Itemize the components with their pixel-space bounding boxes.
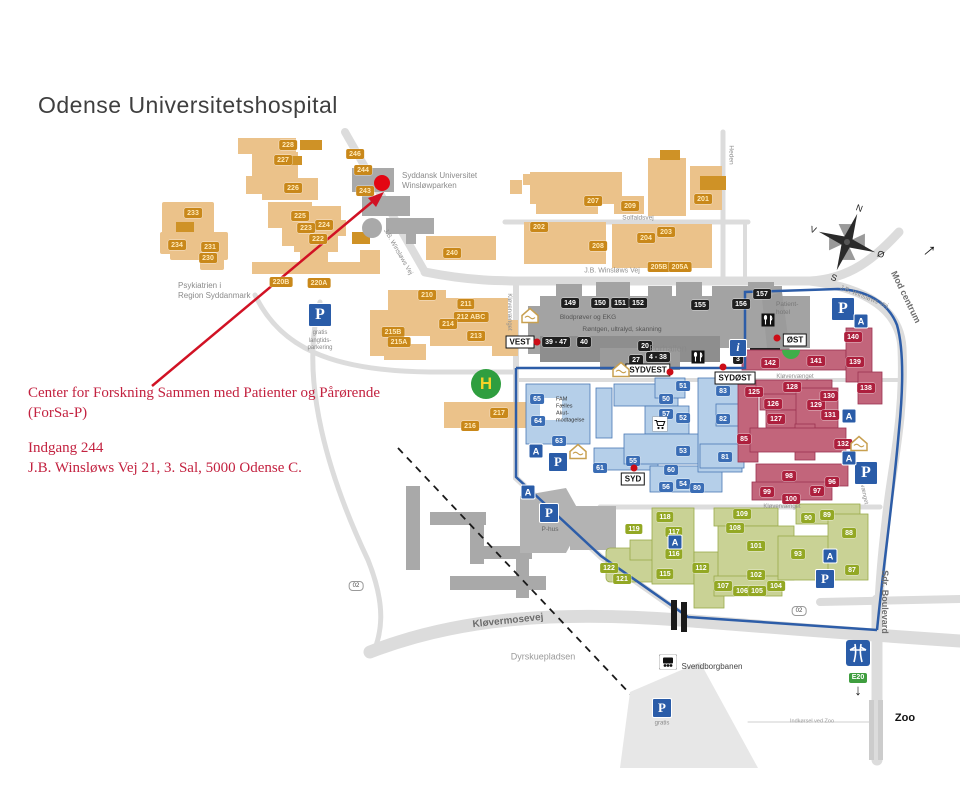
info-icon: i [729, 339, 747, 357]
building-205B: 205B [648, 262, 671, 272]
building-85: 85 [737, 434, 751, 444]
chapel-icon [611, 361, 631, 378]
building-240: 240 [443, 248, 461, 258]
area-label-12: P-hus [542, 526, 559, 534]
building-201: 201 [694, 194, 712, 204]
building-39-47: 39 - 47 [542, 337, 570, 347]
helipad-icon: H [471, 369, 501, 399]
building-202: 202 [530, 222, 548, 232]
building-220A: 220A [308, 278, 331, 288]
building-87: 87 [845, 565, 859, 575]
parking-icon: P [308, 303, 332, 327]
chapel-icon [568, 443, 588, 460]
building-121: 121 [613, 574, 631, 584]
entrance-dot-sydvest [667, 369, 674, 376]
parking-icon: P [854, 461, 878, 485]
building-152: 152 [629, 298, 647, 308]
street-label-3: Solfaldsvej [622, 215, 653, 222]
building-50: 50 [659, 394, 673, 404]
building-93: 93 [791, 549, 805, 559]
building-40: 40 [577, 337, 591, 347]
building-213: 213 [467, 331, 485, 341]
building-227: 227 [274, 155, 292, 165]
building-156: 156 [732, 299, 750, 309]
bus-icon: A [854, 314, 869, 329]
building-80: 80 [690, 483, 704, 493]
building-56: 56 [659, 482, 673, 492]
building-225: 225 [291, 211, 309, 221]
area-label-10: Indkørsel ved Zoo [790, 719, 834, 726]
building-60: 60 [664, 465, 678, 475]
bus-icon: A [842, 409, 857, 424]
entrance-sydvest: SYDVEST [625, 364, 670, 377]
annotation-line-1: Center for Forskning Sammen med Patiente… [28, 383, 428, 403]
building-105: 105 [748, 586, 766, 596]
parking-icon: P [548, 452, 568, 472]
motorway-e20-icon: E20↓ [846, 640, 870, 698]
area-label-5: Røntgen, ultralyd, skanning [582, 326, 661, 334]
parking-icon: P [831, 297, 855, 321]
building-203: 203 [657, 227, 675, 237]
street-label-0: J.B. Winsløws Vej [382, 228, 414, 276]
building-53: 53 [676, 446, 690, 456]
building-118: 118 [656, 512, 673, 522]
area-label-3: Forhallen [649, 343, 687, 354]
building-244: 244 [354, 165, 372, 175]
building-149: 149 [561, 298, 579, 308]
building-208: 208 [589, 241, 607, 251]
down-arrow-icon: ↓ [846, 684, 870, 698]
bus-icon: A [529, 444, 544, 459]
building-51: 51 [676, 381, 690, 391]
building-127: 127 [767, 414, 785, 424]
building-99: 99 [760, 487, 774, 497]
building-220B: 220B [270, 277, 293, 287]
building-233: 233 [184, 208, 202, 218]
building-128: 128 [783, 382, 801, 392]
entrance-dot-øst [774, 335, 781, 342]
building-205A: 205A [669, 262, 692, 272]
entrance-dot-sydøst [720, 364, 727, 371]
entrance-øst: ØST [783, 334, 807, 347]
area-label-4: Blodprøver og EKG [560, 314, 616, 322]
building-207: 207 [584, 196, 602, 206]
building-228: 228 [279, 140, 297, 150]
chapel-icon [520, 307, 540, 324]
building-63: 63 [552, 436, 566, 446]
building-222: 222 [309, 234, 327, 244]
building-155: 155 [691, 300, 709, 310]
building-122: 122 [600, 563, 618, 573]
entrance-vest: VEST [506, 336, 535, 349]
building-212ABC: 212 ABC [454, 312, 489, 322]
area-label-1: Psykiatrien i Region Syddanmark [178, 281, 250, 301]
building-230: 230 [199, 253, 217, 263]
building-157: 157 [753, 289, 771, 299]
bus-icon: A [521, 485, 536, 500]
building-90: 90 [801, 513, 815, 523]
building-125: 125 [745, 387, 763, 397]
area-label-2: Patient- hotel [776, 301, 798, 317]
street-label-7: Kløvervænget [763, 504, 800, 510]
area-label-11: gratis langtids- parkering [307, 330, 332, 353]
area-label-6: FAM Fælles Akut- modtagelse [556, 396, 584, 424]
building-64: 64 [531, 416, 545, 426]
building-224: 224 [315, 220, 333, 230]
page-title: Odense Universitetshospital [38, 92, 338, 119]
building-204: 204 [637, 233, 655, 243]
parking-icon: P [539, 503, 559, 523]
building-226: 226 [284, 183, 302, 193]
restaurant-icon [762, 314, 775, 327]
cart-icon [653, 417, 668, 432]
building-108: 108 [726, 523, 744, 533]
building-209: 209 [621, 201, 639, 211]
building-61: 61 [593, 463, 607, 473]
building-234: 234 [168, 240, 186, 250]
street-label-6: Kløvervænget [776, 374, 813, 380]
map-page: N S Ø V 22822722624624424323323423123022… [0, 0, 960, 805]
entrance-dot-syd [631, 465, 638, 472]
building-215B: 215B [382, 327, 405, 337]
building-131: 131 [821, 410, 839, 420]
building-82: 82 [716, 414, 730, 424]
destination-annotation: Center for Forskning Sammen med Patiente… [28, 383, 428, 478]
building-246: 246 [346, 149, 364, 159]
area-label-0: Syddansk Universitet Winsløwparken [402, 171, 477, 191]
street-label-10: Sdr. Boulevard [880, 570, 890, 634]
building-107: 107 [714, 581, 732, 591]
building-112: 112 [692, 563, 709, 573]
destination-dot [374, 175, 390, 191]
building-243: 243 [356, 186, 374, 196]
building-101: 101 [747, 541, 765, 551]
annotation-line-2: (ForSa-P) [28, 403, 428, 423]
building-81: 81 [718, 452, 732, 462]
building-142: 142 [761, 358, 779, 368]
building-116: 116 [665, 549, 682, 559]
building-89: 89 [820, 510, 834, 520]
building-216: 216 [461, 421, 479, 431]
building-223: 223 [297, 223, 315, 233]
bus-icon: A [842, 451, 857, 466]
building-138: 138 [857, 383, 875, 393]
building-130: 130 [820, 391, 838, 401]
annotation-line-4: J.B. Winsløws Vej 21, 3. Sal, 5000 Odens… [28, 458, 428, 478]
street-label-1: J.B. Winsløws Vej [584, 268, 640, 275]
bus-icon: A [823, 549, 838, 564]
street-label-9: Kløvermosevej [472, 612, 544, 630]
entrance-sydøst: SYDØST [715, 372, 756, 385]
building-83: 83 [716, 386, 730, 396]
chapel-icon [849, 435, 869, 452]
area-label-7: Dyrskuepladsen [511, 651, 576, 662]
building-141: 141 [807, 356, 825, 366]
building-88: 88 [842, 528, 856, 538]
building-115: 115 [656, 569, 673, 579]
train-icon [659, 655, 677, 670]
building-211: 211 [457, 299, 474, 309]
building-139: 139 [846, 357, 864, 367]
restaurant-icon [692, 351, 705, 364]
annotation-line-3: Indgang 244 [28, 438, 428, 458]
street-label-4: Heden [728, 145, 735, 164]
area-label-13: gratis [655, 720, 670, 728]
building-140: 140 [844, 332, 862, 342]
building-129: 129 [807, 400, 825, 410]
bus-icon: A [668, 535, 683, 550]
building-217: 217 [490, 408, 508, 418]
building-54: 54 [676, 479, 690, 489]
building-210: 210 [418, 290, 436, 300]
area-label-9: Zoo [895, 712, 915, 726]
building-151: 151 [611, 298, 629, 308]
parking-icon: P [815, 569, 835, 589]
street-label-5: Kløvervænget [506, 293, 512, 330]
road-badge-1: 02 [792, 606, 807, 616]
building-126: 126 [764, 399, 782, 409]
building-98: 98 [782, 471, 796, 481]
road-badge-0: 02 [349, 581, 364, 591]
building-214: 214 [439, 319, 457, 329]
building-100: 100 [782, 494, 800, 504]
street-label-11: Mod centrum [889, 269, 923, 324]
entrance-syd: SYD [621, 473, 645, 486]
parking-icon: P [652, 698, 672, 718]
mod-centrum-arrow-icon: → [913, 234, 943, 264]
building-215A: 215A [388, 337, 411, 347]
building-109: 109 [733, 509, 751, 519]
building-150: 150 [591, 298, 609, 308]
building-119: 119 [625, 524, 642, 534]
entrance-dot-vest [534, 339, 541, 346]
building-65: 65 [530, 394, 544, 404]
area-label-8: Svendborgbanen [682, 662, 743, 672]
building-104: 104 [767, 581, 785, 591]
building-52: 52 [676, 413, 690, 423]
building-102: 102 [747, 570, 765, 580]
building-96: 96 [825, 477, 839, 487]
building-97: 97 [810, 486, 824, 496]
building-231: 231 [201, 242, 219, 252]
